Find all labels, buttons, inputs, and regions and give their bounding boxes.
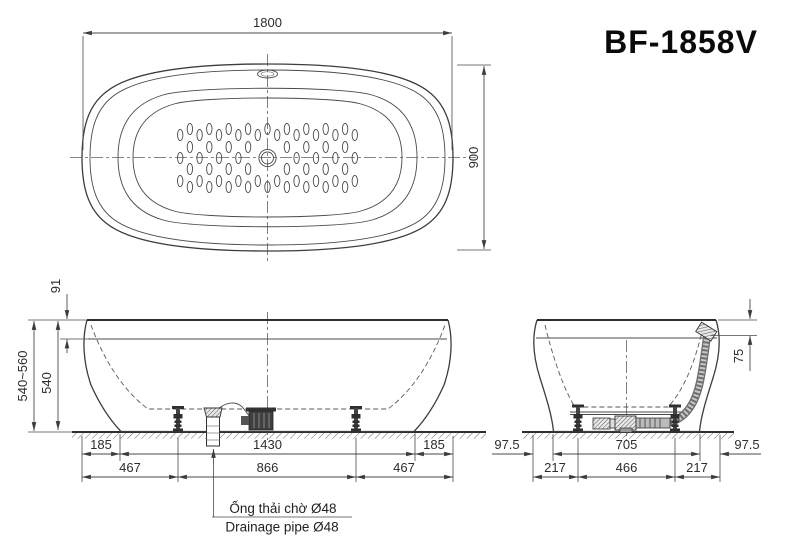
side-inner-profile-dashed xyxy=(545,325,703,407)
adjustable-foot xyxy=(350,406,362,432)
adjustable-foot xyxy=(669,405,681,432)
dim-label-866: 866 xyxy=(257,460,279,475)
dim-label-1430: 1430 xyxy=(253,437,282,452)
waste-piping xyxy=(570,322,717,432)
model-title: BF-1858V xyxy=(604,24,758,60)
annotation-english: Drainage pipe Ø48 xyxy=(225,520,338,535)
dim-label-91: 91 xyxy=(48,279,63,293)
front-left-dimensions: 91 540~560 540 xyxy=(15,279,88,432)
dim-label-75: 75 xyxy=(731,349,746,363)
drainage-standpipe xyxy=(204,408,222,446)
side-bottom-dimensions: 97.5 705 97.5 217 466 217 xyxy=(492,434,761,482)
technical-drawing-page: BF-1858V 1800 900 xyxy=(0,0,800,547)
dim-label-466: 466 xyxy=(616,460,638,475)
side-view: 75 97.5 705 97.5 217 466 217 xyxy=(492,299,761,482)
dim-label-540-560: 540~560 xyxy=(15,351,30,402)
dim-label-217-left: 217 xyxy=(544,460,566,475)
front-bottom-dimensions: 185 1430 185 467 866 467 xyxy=(82,434,453,482)
inner-profile-dashed xyxy=(91,325,445,409)
dim-label-185-left: 185 xyxy=(90,437,112,452)
annotation-vietnamese: Ống thải chờ Ø48 xyxy=(229,501,336,516)
top-view: 1800 900 xyxy=(70,15,491,262)
dim-label-217-right: 217 xyxy=(686,460,708,475)
drainage-pipe-annotation: Ống thải chờ Ø48 Drainage pipe Ø48 xyxy=(212,449,352,535)
bathtub-drawing-svg: BF-1858V 1800 900 xyxy=(0,0,800,547)
dim-label-900: 900 xyxy=(466,147,481,169)
waste-hose xyxy=(218,403,249,416)
dim-label-705: 705 xyxy=(616,437,638,452)
adjustable-foot xyxy=(572,405,584,432)
dim-width-900: 900 xyxy=(457,65,491,250)
front-view: 91 540~560 540 185 1430 185 467 866 46 xyxy=(15,279,486,535)
adjustable-foot xyxy=(172,406,184,432)
dim-label-467-right: 467 xyxy=(393,460,415,475)
dim-label-1800: 1800 xyxy=(253,15,282,30)
dim-label-97-5-right: 97.5 xyxy=(734,437,759,452)
dim-label-97-5-left: 97.5 xyxy=(494,437,519,452)
dim-label-540: 540 xyxy=(39,372,54,394)
drain-assembly xyxy=(241,408,276,431)
dim-label-467-left: 467 xyxy=(119,460,141,475)
dim-label-185-right: 185 xyxy=(423,437,445,452)
